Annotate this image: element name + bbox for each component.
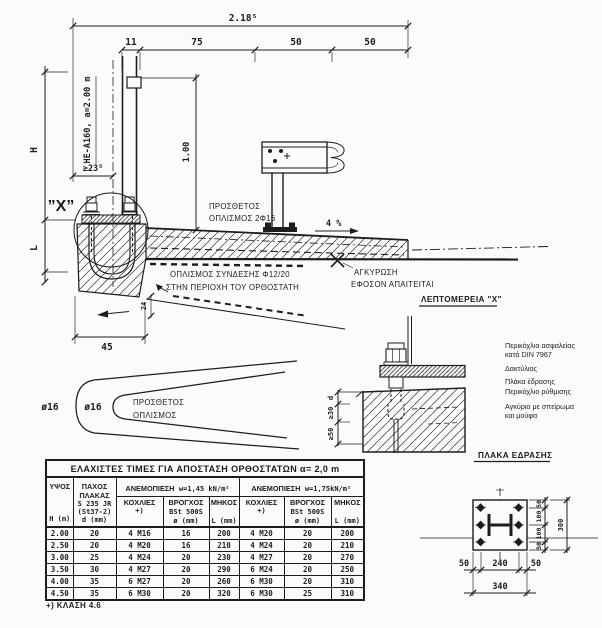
cell: 210 — [331, 540, 364, 552]
dim-50-label: ≥50 — [327, 428, 335, 441]
cell: 320 — [209, 588, 239, 601]
height-unit: H (m) — [49, 515, 70, 523]
len1-word: ΜΗΚΟΣ — [211, 498, 237, 507]
extra-reinf-label-1: ΠΡΟΣΘΕΤΟΣ — [209, 202, 260, 211]
cell: 4.50 — [46, 588, 73, 601]
cell: 20 — [284, 540, 331, 552]
length-2-header: ΜΗΚΟΣ L (mm) — [331, 497, 364, 528]
cell: 250 — [331, 564, 364, 576]
guardrail-base-plate — [263, 227, 297, 232]
cell: 6 M27 — [116, 576, 163, 588]
cell: 310 — [331, 576, 364, 588]
adjusting-nut — [389, 377, 403, 388]
hairpin-rebar-detail: ø16 ø16 ΠΡΟΣΘΕΤΟΣ ΟΠΛΙΣΜΟΣ — [41, 361, 299, 449]
hex-nut — [386, 349, 406, 362]
dim-total-label: 2.18⁵ — [229, 13, 258, 24]
dim-min235-label: ≥23⁵ — [83, 164, 103, 174]
cell: 200 — [209, 527, 239, 540]
table-footnote: +) ΚΛΑΣΗ 4.6 — [46, 601, 101, 610]
connection-label-1: ΟΠΛΙΣΜΟΣ ΣΥΝΔΕΣΗΣ Φ12/20 — [170, 270, 290, 279]
bolts1-word: ΚΟΧΛΙΕΣ — [124, 498, 156, 507]
post-top-bracket — [127, 77, 141, 88]
loop2-unit: ø (mm) — [295, 517, 320, 525]
cell: 16 — [163, 527, 209, 540]
bolts-1-header: ΚΟΧΛΙΕΣ +) — [116, 497, 163, 528]
slope-arrow — [350, 228, 359, 234]
connection-label-2: ΣΤΗΝ ΠΕΡΙΟΧΗ ΤΟΥ ΟΡΘΟΣΤΑΤΗ — [166, 283, 299, 292]
cell: 20 — [284, 552, 331, 564]
table-title: ΕΛΑΧΙΣΤΕΣ ΤΙΜΕΣ ΓΙΑ ΑΠΟΣΤΑΣΗ ΟΡΘΟΣΤΑΤΩΝ … — [46, 460, 364, 477]
cell: 260 — [209, 576, 239, 588]
height-label: ΥΨΟΣ — [49, 482, 70, 491]
table-row: 3.50304 M27202906 M2420250 — [46, 564, 364, 576]
top-dimension-chain: 2.18⁵ 11 75 50 50 — [70, 13, 411, 182]
rail-height-dimension: 1.00 — [182, 74, 199, 233]
cell: 20 — [163, 588, 209, 601]
dim-100-label: 1.00 — [182, 142, 192, 162]
dim-H-label: H — [29, 147, 40, 153]
post-base-plate-side — [82, 215, 140, 223]
loop1-unit: ø (mm) — [173, 517, 198, 525]
dim-45-label: 45 — [101, 342, 113, 353]
anchorage-label-1: ΑΓΚΥΡΩΣΗ — [354, 268, 398, 277]
dim-75-label: 75 — [191, 37, 203, 48]
cell: 270 — [331, 552, 364, 564]
phi16-inner-label: ø16 — [84, 402, 101, 413]
table-row: 2.00204 M16162004 M2020200 — [46, 527, 364, 540]
hairpin-label-1: ΠΡΟΣΘΕΤΟΣ — [133, 398, 184, 407]
wind2-value: w=1,75kN/m² — [305, 485, 351, 493]
loop-2-header: ΒΡΟΓΧΟΣ BSt 500S ø (mm) — [284, 497, 331, 528]
cell: 25 — [284, 588, 331, 601]
cell: 230 — [209, 552, 239, 564]
loop1-word: ΒΡΟΓΧΟΣ — [168, 498, 203, 507]
wind2-word: ΑΝΕΜΟΠΙΕΣΗ — [251, 484, 300, 493]
base-plate-plan: ΠΛΑΚΑ ΕΔΡΑΣΗΣ — [420, 451, 598, 596]
bearing-plate-side — [380, 366, 465, 378]
detail-concrete — [363, 388, 465, 452]
cell: 25 — [73, 552, 116, 564]
cell: 6 M30 — [116, 588, 163, 601]
cell: 20 — [284, 564, 331, 576]
hairpin-label-2: ΟΠΛΙΣΜΟΣ — [133, 411, 177, 420]
slope-label: 4 % — [326, 219, 342, 229]
safety-nut — [388, 343, 404, 349]
cell: 20 — [163, 576, 209, 588]
bolts2-note: +) — [257, 507, 265, 515]
bolts2-word: ΚΟΧΛΙΕΣ — [246, 498, 278, 507]
wind1-word: ΑΝΕΜΟΠΙΕΣΗ — [125, 484, 174, 493]
cell: 2.50 — [46, 540, 73, 552]
left-arrow — [97, 311, 108, 318]
cell: 16 — [163, 540, 209, 552]
cell: 3.50 — [46, 564, 73, 576]
deck-axis-centerline — [412, 247, 548, 251]
note-anchor-1: Αγκύριο με σπείρωμα — [505, 402, 574, 411]
detail-x: ΛΕΠΤΟΜΕΡΕΙΑ "X" d — [327, 295, 575, 453]
thk-l1: ΠΑΧΟΣ — [82, 482, 107, 491]
post-section-label: HE-A160, a=2.00 m — [83, 77, 93, 164]
cell: 6 M30 — [239, 576, 284, 588]
cell: 4 M16 — [116, 527, 163, 540]
dim-50b-label: 50 — [364, 37, 376, 48]
note-safety-nut-2: κατά DIN 7967 — [505, 350, 552, 359]
cell: 210 — [209, 540, 239, 552]
cell: 20 — [73, 527, 116, 540]
dim-50a-label: 50 — [290, 37, 302, 48]
cell: 4 M24 — [239, 540, 284, 552]
bolts1-note: +) — [135, 507, 143, 515]
plate-dim-50b: 50 — [535, 542, 543, 550]
cell: 4 M20 — [239, 527, 284, 540]
dim-11-label: 11 — [125, 37, 137, 48]
plate-dim-240: 240 — [492, 559, 507, 569]
note-safety-nut-1: Περικόχλια ασφαλείας — [505, 341, 575, 350]
cell: 20 — [163, 564, 209, 576]
note-ring: Δακτύλιος — [505, 364, 538, 373]
base-plate-title: ΠΛΑΚΑ ΕΔΡΑΣΗΣ — [478, 451, 552, 460]
cell: 200 — [331, 527, 364, 540]
technical-drawing-sheet: 2.18⁵ 11 75 50 50 H L HE-A160, a=2.0 — [0, 0, 602, 628]
thk-l4: (St37-2) — [78, 508, 112, 516]
loop2-word: ΒΡΟΓΧΟΣ — [290, 498, 325, 507]
cell: 20 — [163, 552, 209, 564]
cell: 290 — [209, 564, 239, 576]
cell: 4 M20 — [116, 540, 163, 552]
loop2-grade: BSt 500S — [291, 508, 325, 516]
wind-group-1-header: ΑΝΕΜΟΠΙΕΣΗ w=1,45 kN/m² — [116, 477, 239, 497]
dim-30-label: ≥30 — [327, 407, 335, 420]
note-anchor-2: και μούφα — [505, 411, 537, 420]
note-adjusting-nut: Περικόχλιο ρύθμισης — [505, 387, 572, 396]
cell: 310 — [331, 588, 364, 601]
connection-rebar-dashes — [150, 264, 306, 266]
wbeam-lower-curl — [327, 158, 344, 174]
bolts-2-header: ΚΟΧΛΙΕΣ +) — [239, 497, 284, 528]
anchorage-label-2: ΕΦΟΣΟΝ ΑΠΑΙΤΕΙΤΑΙ — [351, 280, 434, 289]
wind1-value: w=1,45 kN/m² — [179, 485, 230, 493]
table-row: 4.50356 M30203206 M3025310 — [46, 588, 364, 601]
thk-l3: S 235 JR — [78, 500, 112, 508]
dim-L-label: L — [29, 245, 40, 251]
plate-dim-340: 340 — [492, 582, 507, 592]
curb-block: ”X” 45 24 — [48, 193, 155, 353]
loop1-grade: BSt 500S — [169, 508, 203, 516]
len2-word: ΜΗΚΟΣ — [334, 498, 360, 507]
plate-dim-300: 300 — [557, 519, 565, 532]
col-height-header: ΥΨΟΣ H (m) — [46, 477, 73, 527]
wbeam-upper-curl — [327, 142, 344, 158]
thk-l2: ΠΛΑΚΑΣ — [79, 491, 109, 500]
plate-dim-100a: 100 — [535, 511, 543, 523]
plate-dim-h50a: 50 — [459, 559, 469, 569]
cell: 2.00 — [46, 527, 73, 540]
cell: 35 — [73, 588, 116, 601]
table-row: 2.50204 M20162104 M2420210 — [46, 540, 364, 552]
deck-slab: 4 % ΠΡΟΣΘΕΤΟΣ ΟΠΛΙΣΜΟΣ 2Φ16 ΟΠΛΙΣΜΟΣ ΣΥΝ… — [146, 202, 548, 329]
cell: 35 — [73, 576, 116, 588]
detail-title: ΛΕΠΤΟΜΕΡΕΙΑ "X" — [421, 295, 502, 304]
cell: 4 M27 — [239, 552, 284, 564]
cell: 6 M30 — [239, 588, 284, 601]
note-bearing-plate: Πλάκα έδρασης — [505, 377, 555, 386]
min-values-table: ΕΛΑΧΙΣΤΕΣ ΤΙΜΕΣ ΓΙΑ ΑΠΟΣΤΑΣΗ ΟΡΘΟΣΤΑΤΩΝ … — [45, 459, 365, 601]
dim-24-label: 24 — [140, 302, 148, 310]
cell: 4.00 — [46, 576, 73, 588]
thk-unit: d (mm) — [82, 516, 107, 524]
cell: 20 — [284, 527, 331, 540]
dim-d-label: d — [327, 396, 335, 400]
cell: 6 M24 — [239, 564, 284, 576]
cell: 4 M24 — [116, 552, 163, 564]
length-1-header: ΜΗΚΟΣ L (mm) — [209, 497, 239, 528]
plate-dim-h50b: 50 — [531, 559, 541, 569]
table-row: 4.00356 M27202606 M3020310 — [46, 576, 364, 588]
phi16-outer-label: ø16 — [41, 402, 58, 413]
cell: 20 — [73, 540, 116, 552]
plate-dim-50a: 50 — [535, 500, 543, 508]
detail-x-reference: ”X” — [48, 198, 75, 215]
washer-ring — [384, 362, 408, 365]
cell: 30 — [73, 564, 116, 576]
plate-dim-100b: 100 — [535, 528, 543, 540]
cell: 3.00 — [46, 552, 73, 564]
len2-unit: L (mm) — [335, 517, 360, 525]
table-row: 3.00254 M24202304 M2720270 — [46, 552, 364, 564]
len1-unit: L (mm) — [211, 517, 236, 525]
extra-reinf-label-2: ΟΠΛΙΣΜΟΣ 2Φ16 — [209, 214, 276, 223]
loop-1-header: ΒΡΟΓΧΟΣ BSt 500S ø (mm) — [163, 497, 209, 528]
wind-group-2-header: ΑΝΕΜΟΠΙΕΣΗ w=1,75kN/m² — [239, 477, 364, 497]
left-dimension-chain: H L — [29, 66, 76, 285]
cell: 4 M27 — [116, 564, 163, 576]
col-thickness-header: ΠΑΧΟΣ ΠΛΑΚΑΣ S 235 JR (St37-2) d (mm) — [73, 477, 116, 527]
cell: 20 — [284, 576, 331, 588]
